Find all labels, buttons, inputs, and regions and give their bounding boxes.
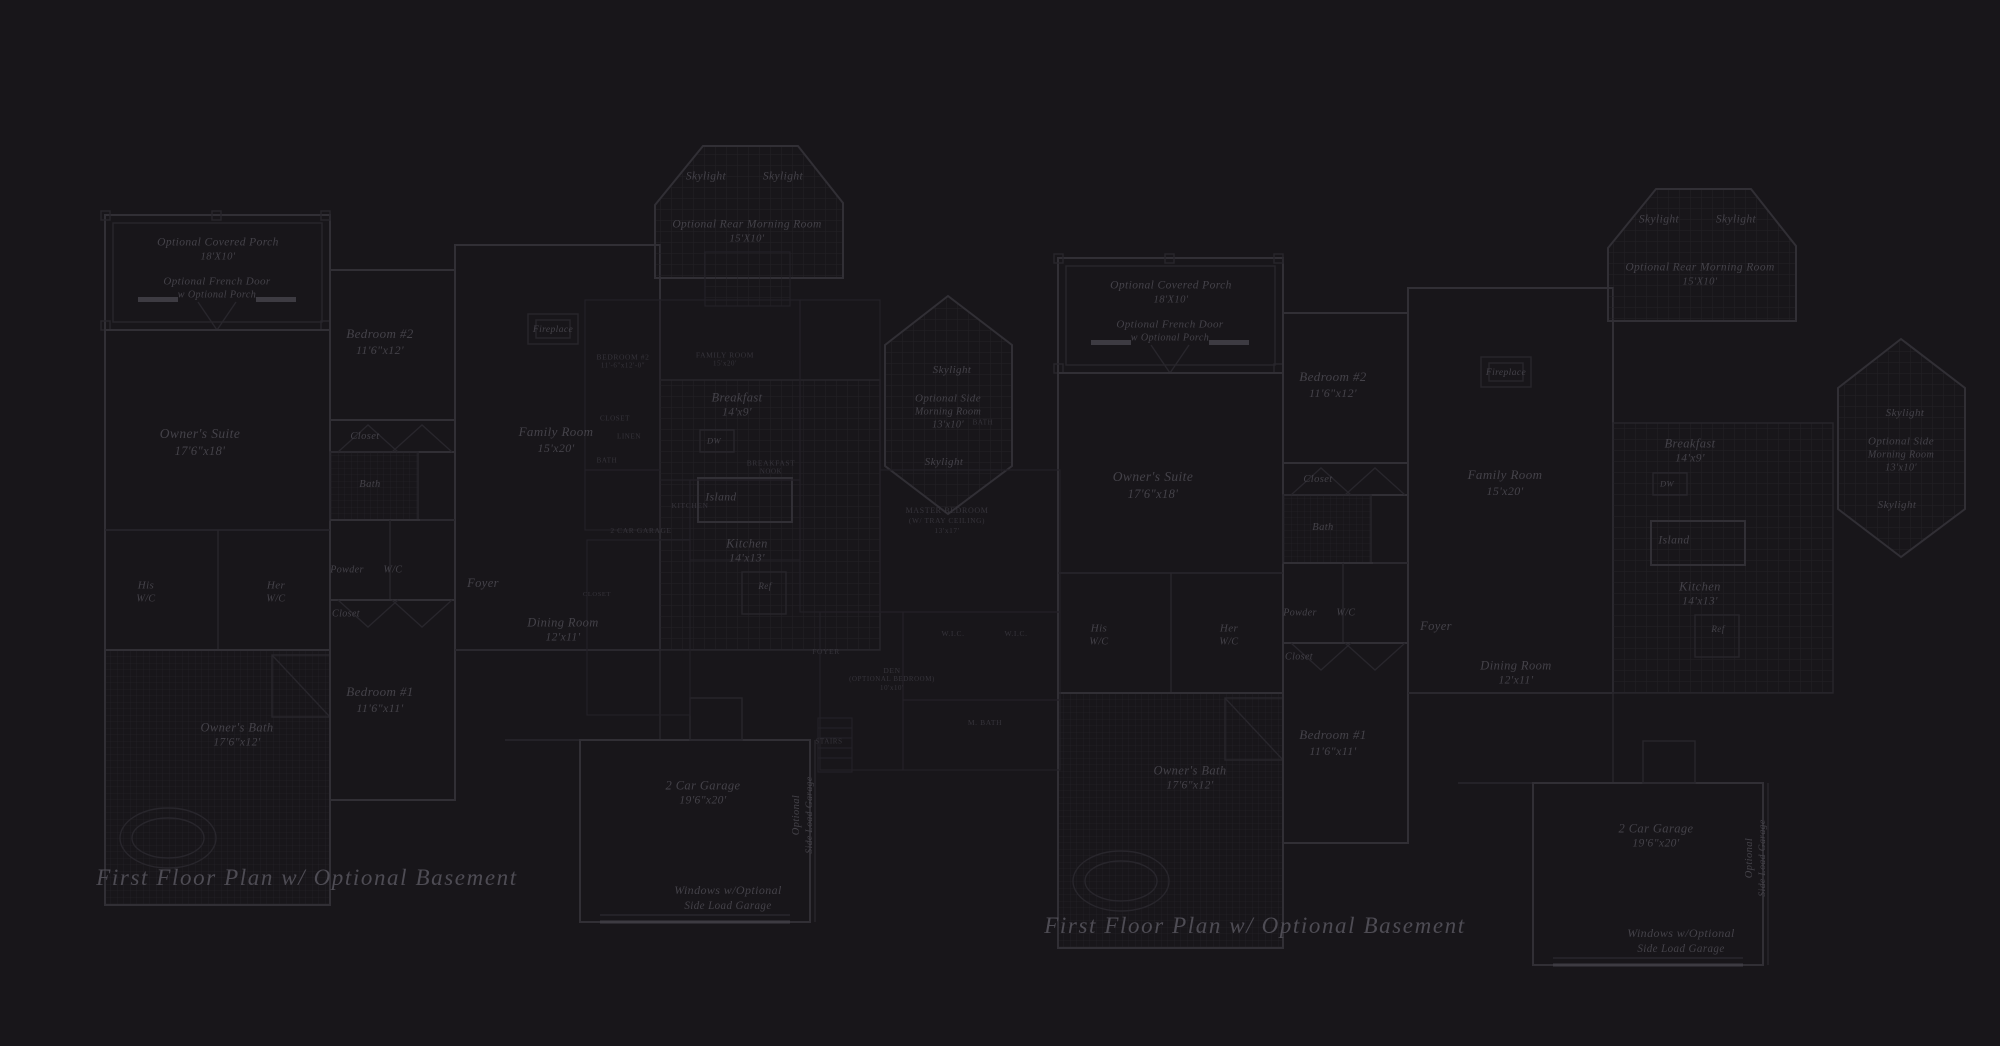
plan-caption: First Floor Plan w/ Optional Basement xyxy=(1044,911,1465,941)
room-label-line: First Floor Plan w/ Optional Basement xyxy=(1044,911,1465,941)
plan-caption: First Floor Plan w/ Optional Basement xyxy=(96,863,517,893)
plan-captions: First Floor Plan w/ Optional BasementFir… xyxy=(0,0,2000,1046)
room-label-line: First Floor Plan w/ Optional Basement xyxy=(96,863,517,893)
blueprint-canvas: Optional Covered Porch18'X10'Optional Fr… xyxy=(0,0,2000,1046)
